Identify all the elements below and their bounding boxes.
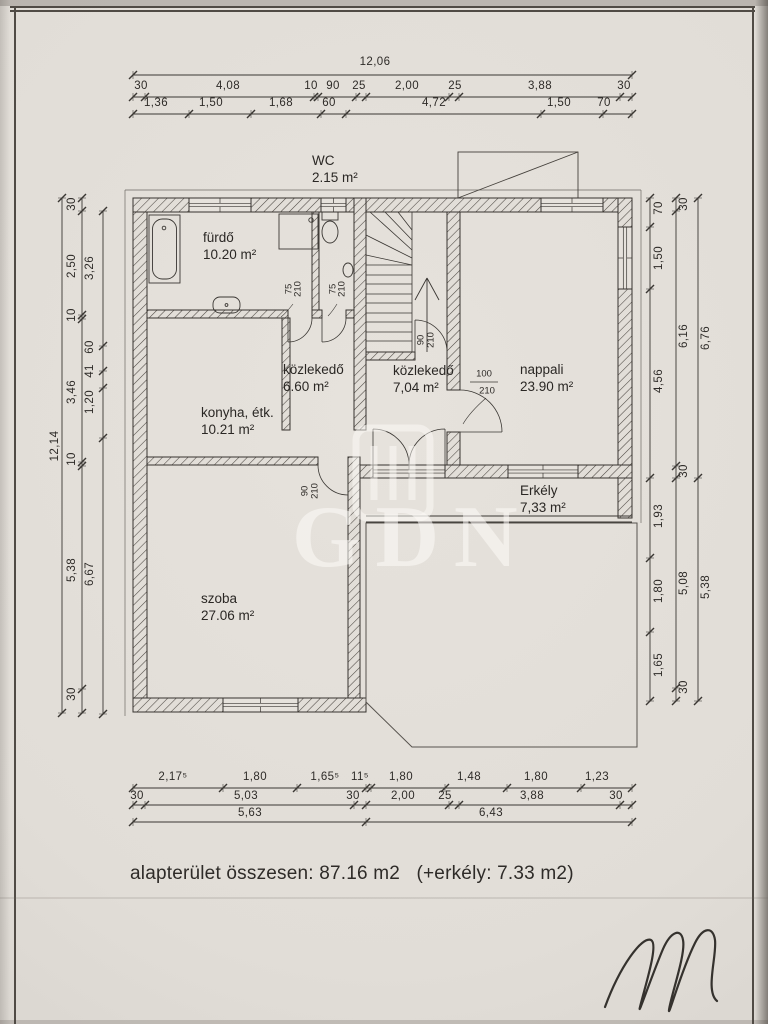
room-area: 27.06 m² (201, 607, 254, 624)
dim-label: 6,67 (84, 562, 96, 586)
dim-label: 30 (678, 680, 690, 694)
door-size-label: 210 (310, 483, 321, 499)
dim-label: 5,38 (66, 558, 78, 582)
dim-label: 6,76 (700, 326, 712, 350)
dim-label: 1,48 (457, 771, 481, 783)
dim-label: 11⁵ (351, 771, 369, 783)
dim-label: 60 (322, 97, 336, 109)
dim-label: 12,06 (360, 56, 391, 68)
room-name: nappali (520, 361, 573, 378)
dim-label: 1,93 (653, 504, 665, 528)
room-area: 7,33 m² (520, 499, 566, 516)
door-size-label: 210 (479, 386, 495, 397)
room-label-nappali: nappali 23.90 m² (520, 361, 573, 395)
dim-label: 1,80 (653, 579, 665, 603)
dim-label: 1,50 (199, 97, 223, 109)
dim-label: 4,56 (653, 369, 665, 393)
dim-label: 12,14 (49, 431, 61, 462)
dim-label: 1,23 (585, 771, 609, 783)
dim-label: 30 (66, 197, 78, 211)
dim-label: 1,36 (144, 97, 168, 109)
dim-label: 1,50 (547, 97, 571, 109)
dim-label: 30 (609, 790, 623, 802)
dim-label: 3,88 (520, 790, 544, 802)
dim-label: 2,00 (391, 790, 415, 802)
dim-label: 5,08 (678, 571, 690, 595)
dim-label: 3,46 (66, 380, 78, 404)
dim-label: 5,63 (238, 807, 262, 819)
dim-label: 2,17⁵ (158, 771, 187, 783)
dim-label: 1,68 (269, 97, 293, 109)
scanned-floor-plan-page: GDN 12,06 30 4,08 10 90 25 2,00 25 3,88 … (0, 0, 768, 1024)
door-size-label: 210 (293, 281, 304, 297)
dim-label: 1,65 (653, 653, 665, 677)
dim-label: 6,16 (678, 324, 690, 348)
dim-label: 2,50 (66, 254, 78, 278)
dim-label: 10 (304, 80, 318, 92)
room-area: 23.90 m² (520, 378, 573, 395)
room-label-konyha: konyha, étk. 10.21 m² (201, 404, 274, 438)
room-label-erkely: Erkély 7,33 m² (520, 482, 566, 516)
room-area: 10.20 m² (203, 246, 256, 263)
room-name: WC (312, 152, 358, 169)
door-size-label: 210 (426, 332, 437, 348)
room-name: fürdő (203, 229, 256, 246)
door-size-label: 210 (337, 281, 348, 297)
room-area: 2.15 m² (312, 169, 358, 186)
dim-label: 30 (617, 80, 631, 92)
dim-label: 60 (84, 340, 96, 354)
dim-label: 41 (84, 364, 96, 378)
dim-label: 10 (66, 452, 78, 466)
watermark-text: GDN (292, 487, 533, 588)
dim-label: 1,65⁵ (310, 771, 339, 783)
dim-label: 1,80 (243, 771, 267, 783)
room-label-kozlekedo-2: közlekedő 7,04 m² (393, 362, 454, 396)
room-area: 6.60 m² (283, 378, 344, 395)
dim-label: 6,43 (479, 807, 503, 819)
room-label-szoba: szoba 27.06 m² (201, 590, 254, 624)
dim-label: 3,88 (528, 80, 552, 92)
room-name: szoba (201, 590, 254, 607)
dim-label: 1,80 (389, 771, 413, 783)
dim-label: 90 (326, 80, 340, 92)
dim-label: 4,72 (422, 97, 446, 109)
dim-label: 30 (346, 790, 360, 802)
dim-label: 70 (653, 201, 665, 215)
room-name: konyha, étk. (201, 404, 274, 421)
room-name: Erkély (520, 482, 566, 499)
dim-label: 5,38 (700, 575, 712, 599)
dim-label: 70 (597, 97, 611, 109)
dim-label: 10 (66, 308, 78, 322)
dim-label: 30 (134, 80, 148, 92)
total-area-text: alapterület összesen: 87.16 m2 (+erkély:… (130, 863, 574, 885)
dim-label: 25 (448, 80, 462, 92)
dim-label: 1,50 (653, 246, 665, 270)
room-area: 10.21 m² (201, 421, 274, 438)
dim-label: 3,26 (84, 256, 96, 280)
dim-label: 30 (678, 464, 690, 478)
dim-label: 1,20 (84, 390, 96, 414)
room-label-wc: WC 2.15 m² (312, 152, 358, 186)
dim-label: 30 (66, 687, 78, 701)
dim-label: 4,08 (216, 80, 240, 92)
dim-label: 25 (352, 80, 366, 92)
room-name: közlekedő (393, 362, 454, 379)
dim-label: 30 (130, 790, 144, 802)
room-area: 7,04 m² (393, 379, 454, 396)
room-label-furdo: fürdő 10.20 m² (203, 229, 256, 263)
room-label-kozlekedo-1: közlekedő 6.60 m² (283, 361, 344, 395)
room-name: közlekedő (283, 361, 344, 378)
dim-label: 25 (438, 790, 452, 802)
dim-label: 1,80 (524, 771, 548, 783)
dim-label: 30 (678, 197, 690, 211)
dim-label: 5,03 (234, 790, 258, 802)
dim-label: 2,00 (395, 80, 419, 92)
door-size-label: 100 (476, 369, 492, 380)
